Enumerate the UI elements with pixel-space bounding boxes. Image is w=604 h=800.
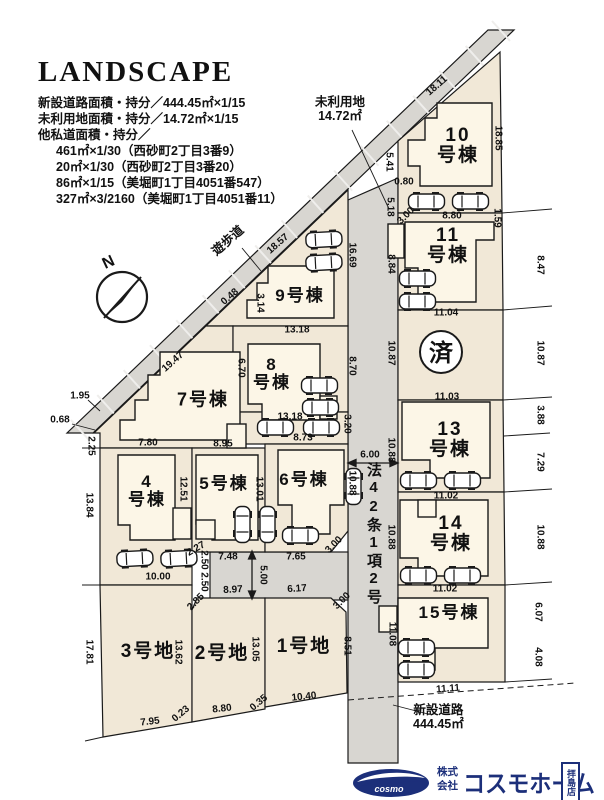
road-42-label: 法42条1項2号 [363, 462, 384, 606]
sold-mark: 済 [429, 333, 453, 368]
dimension-label: 8.51 [342, 636, 353, 655]
parcel-label: 3号地 [121, 642, 176, 662]
dimension-label: 5.18 [385, 197, 396, 216]
dimension-label: 7.29 [535, 452, 546, 471]
dimension-label: 11.02 [434, 491, 458, 502]
dimension-label: 8.73 [293, 433, 312, 444]
parcel-label: 5号棟 [199, 475, 248, 493]
dimension-label: 1.95 [70, 391, 89, 402]
dimension-label: 5.00 [258, 565, 269, 584]
dimension-label: 7.48 [218, 552, 237, 563]
cosmo-logo-text: cosmo [374, 784, 404, 794]
dimension-label: 6.07 [533, 602, 544, 621]
car-icon [305, 252, 342, 273]
unused-land-label: 未利用地 14.72㎡ [315, 95, 365, 124]
unused-land-label-line1: 未利用地 [315, 95, 365, 109]
car-icon [116, 548, 153, 569]
dimension-label: 3.20 [342, 414, 353, 433]
house-4-porch [173, 508, 191, 539]
company-logo: cosmo 株式 会社 コスモホーム 拝島店 [345, 764, 585, 800]
dimension-label: 11.11 [436, 683, 461, 696]
car-icon [445, 566, 481, 585]
dimension-label: 10.88 [535, 524, 546, 549]
dimension-label: 11.02 [433, 584, 457, 595]
company-prefix-line1: 株式 [437, 766, 458, 780]
dimension-label: 3.14 [255, 293, 266, 312]
parcel-label: 7号棟 [177, 391, 229, 410]
new-road-label: 新設道路 444.45㎡ [413, 703, 464, 732]
dimension-label: 1.59 [492, 208, 503, 227]
parcel-label: 9号棟 [275, 287, 324, 305]
parcel-label: 1号地 [277, 637, 332, 657]
dimension-label: 8.97 [223, 584, 243, 596]
dimension-label: 13.05 [250, 636, 261, 661]
dimension-label: 8.95 [213, 439, 232, 450]
dimension-label: 8.80 [442, 211, 461, 222]
dimension-label: 11.08 [387, 622, 398, 646]
dimension-label: 7.95 [140, 716, 161, 729]
company-prefix-line2: 会社 [437, 780, 458, 794]
new-road-label-line1: 新設道路 [413, 703, 464, 717]
car-icon [305, 229, 342, 250]
dimension-label: 10.00 [145, 572, 170, 583]
dimension-label: 5.41 [384, 152, 395, 171]
car-icon [399, 660, 435, 679]
dimension-label: 13.18 [277, 412, 302, 423]
dimension-label: 7.80 [138, 438, 157, 449]
dimension-label: 13.84 [84, 492, 95, 517]
dimension-label: 0.68 [50, 415, 69, 426]
parcel-label: 14号棟 [430, 514, 472, 554]
cosmo-logo-oval: cosmo [345, 764, 435, 800]
dimension-label: 0.80 [394, 177, 413, 188]
page-title: LANDSCAPE [38, 56, 233, 89]
dimension-label: 8.84 [386, 254, 397, 273]
car-icon [409, 192, 445, 211]
dimension-label: 8.80 [212, 703, 233, 716]
parcel-label: 13号棟 [429, 420, 471, 460]
parcel-label: 8号棟 [253, 356, 291, 392]
new-road-label-line2: 444.45㎡ [413, 717, 464, 731]
dimension-label: 10.87 [535, 340, 546, 365]
dimension-label: 7.65 [286, 552, 305, 563]
header-line: 327㎡×3/2160（美堀町1丁目4051番11） [56, 188, 283, 207]
house-11-porch [388, 224, 404, 258]
dimension-label: 3.88 [535, 405, 546, 424]
car-icon [401, 471, 437, 490]
dimension-label: 11.04 [434, 308, 458, 319]
car-icon [303, 398, 339, 417]
dimension-label: 6.17 [287, 583, 307, 595]
car-icon [445, 471, 481, 490]
car-icon [401, 566, 437, 585]
site-plan-page: LANDSCAPE 新設道路面積・持分／444.45㎡×1/15 未利用地面積・… [0, 0, 604, 800]
dimension-label: 10.88 [386, 524, 397, 549]
dimension-label: 2.25 [86, 436, 97, 455]
parcel-label: 10号棟 [437, 126, 479, 166]
parcel-label: 6号棟 [279, 471, 328, 489]
dimension-label: 13.18 [284, 325, 309, 336]
dimension-label: 10.88 [347, 470, 358, 495]
dimension-label: 16.69 [347, 242, 358, 267]
car-icon [258, 507, 277, 543]
dimension-label: 6.70 [236, 358, 247, 377]
car-icon [302, 376, 338, 395]
dimension-label: 6.00 [360, 450, 379, 461]
dimension-label: 18.85 [493, 125, 504, 150]
dimension-label: 8.47 [535, 255, 546, 274]
car-icon [233, 507, 252, 543]
compass-icon [97, 272, 147, 322]
car-icon [399, 638, 435, 657]
dimension-label: 2.50 [199, 550, 210, 569]
dimension-label: 10.88 [386, 437, 397, 462]
car-icon [283, 526, 319, 545]
dimension-label: 11.03 [435, 392, 459, 403]
branch-badge: 拝島店 [561, 762, 580, 800]
car-icon [400, 269, 436, 288]
parcel-label: 11号棟 [427, 226, 469, 266]
parcel-label: 2号地 [195, 644, 250, 664]
dimension-label: 17.81 [84, 639, 95, 664]
company-prefix: 株式 会社 [437, 766, 458, 793]
dimension-label: 4.08 [533, 647, 544, 666]
car-icon [453, 192, 489, 211]
unused-land-label-line2: 14.72㎡ [315, 109, 365, 123]
car-icon [400, 292, 436, 311]
dimension-label: 2.50 [199, 572, 210, 591]
dimension-label: 10.87 [386, 340, 397, 365]
dimension-label: 8.70 [347, 356, 358, 375]
dimension-label: 13.01 [254, 476, 265, 501]
parcel-label: 15号棟 [419, 604, 480, 622]
dimension-label: 12.51 [178, 476, 189, 501]
parcel-label: 4号棟 [128, 473, 166, 509]
house-5-porch [196, 520, 215, 539]
